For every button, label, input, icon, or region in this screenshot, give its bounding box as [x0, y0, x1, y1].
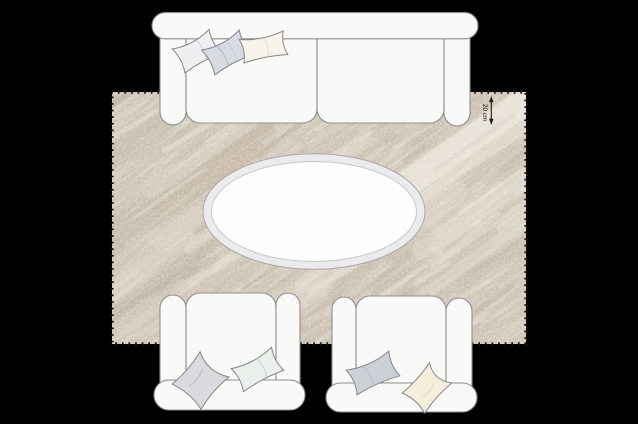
svg-text:20 cm: 20 cm	[481, 104, 488, 121]
